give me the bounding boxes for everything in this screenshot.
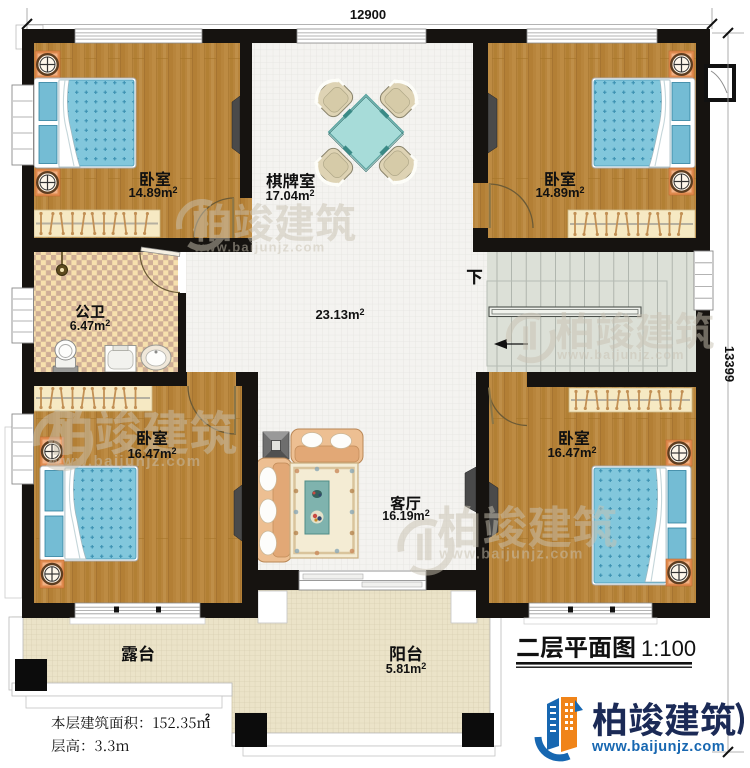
- svg-text:6.47m2: 6.47m2: [70, 318, 110, 333]
- svg-text:16.47m2: 16.47m2: [547, 445, 596, 460]
- svg-text:www.baijunjz.com: www.baijunjz.com: [193, 240, 325, 255]
- svg-text:2: 2: [205, 712, 210, 722]
- svg-text:14.89m2: 14.89m2: [128, 185, 177, 200]
- svg-text:23.13m2: 23.13m2: [315, 307, 364, 322]
- svg-text:www.baijunjz.com: www.baijunjz.com: [556, 348, 684, 362]
- svg-text:5.81m2: 5.81m2: [386, 661, 426, 676]
- svg-text:17.04m2: 17.04m2: [265, 188, 314, 203]
- svg-text:www.baijunjz.com: www.baijunjz.com: [591, 739, 725, 755]
- svg-text:www.baijunjz.com: www.baijunjz.com: [48, 453, 201, 470]
- svg-text:14.89m2: 14.89m2: [535, 185, 584, 200]
- svg-text:16.47m2: 16.47m2: [127, 446, 176, 461]
- svg-text:1:100: 1:100: [641, 636, 696, 661]
- svg-text:www.baijunjz.com: www.baijunjz.com: [438, 547, 584, 563]
- svg-text:13399: 13399: [722, 346, 737, 382]
- svg-text:16.19m2: 16.19m2: [382, 508, 429, 523]
- svg-text:12900: 12900: [350, 7, 386, 22]
